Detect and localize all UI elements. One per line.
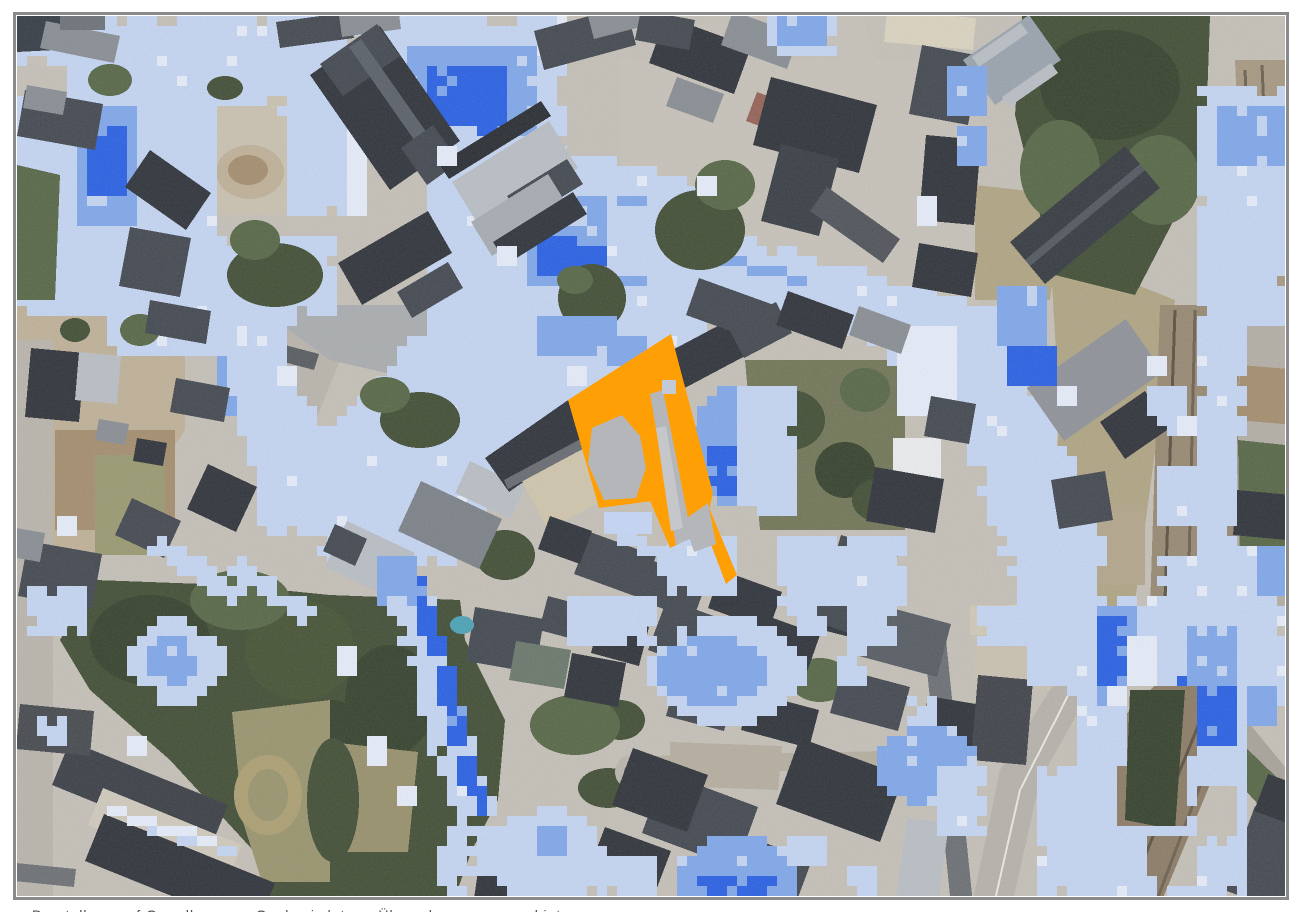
- svg-text:Darstellung auf Grundlage von: Darstellung auf Grundlage von Geobasisda…: [32, 906, 570, 912]
